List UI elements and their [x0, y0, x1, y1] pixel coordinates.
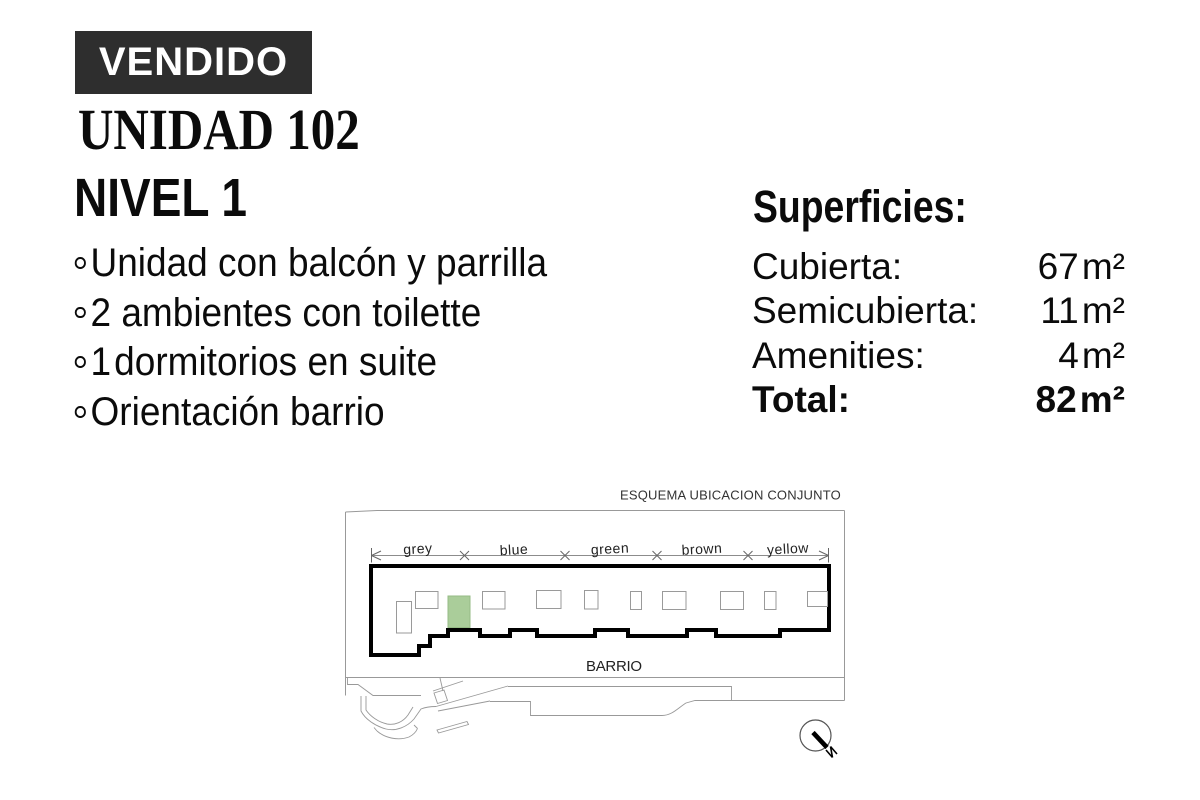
svg-text:blue: blue — [499, 541, 528, 558]
svg-text:ESQUEMA UBICACION CONJUNTO: ESQUEMA UBICACION CONJUNTO — [620, 488, 841, 503]
svg-text:green: green — [590, 540, 629, 558]
svg-text:grey: grey — [403, 540, 433, 558]
svg-text:brown: brown — [681, 540, 722, 558]
svg-text:yellow: yellow — [767, 539, 810, 557]
svg-text:BARRIO: BARRIO — [586, 658, 642, 675]
